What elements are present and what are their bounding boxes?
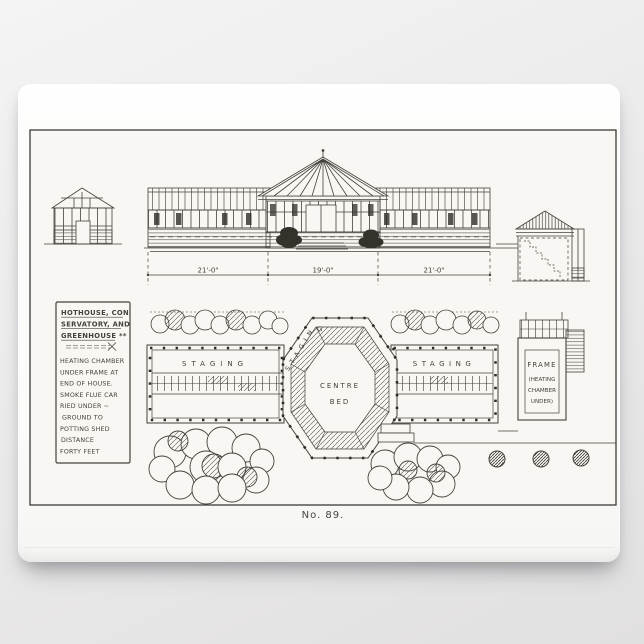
frame-box-label-line-4: UNDER)	[531, 399, 553, 405]
notes-body-line-5: RIED UNDER ~	[60, 403, 109, 410]
notes-body-line-6: GROUND TO	[62, 415, 103, 422]
notes-body-line-8: DISTANCE	[61, 437, 94, 444]
centre-bed-label-line-1: CENTRE	[320, 382, 360, 390]
dimension-label-right: 21'-0"	[423, 267, 444, 275]
frame-box-label-line-1: FRAME	[527, 361, 556, 369]
notes-body-line-9: FORTY FEET	[60, 448, 100, 455]
notes-body-line-7: POTTING SHED	[60, 426, 110, 433]
notes-body-line-2: UNDER FRAME AT	[60, 369, 118, 376]
notes-title-line-3: GREENHOUSE **	[61, 332, 127, 340]
notes-box: HOTHOUSE, CON SERVATORY, AND GREENHOUSE …	[56, 302, 130, 463]
notes-title-line-1: HOTHOUSE, CON	[61, 309, 129, 317]
frame-box-label-line-3: CHAMBER	[528, 388, 556, 394]
plan-bush-cluster-left	[149, 427, 274, 504]
frame-box-label-line-2: (HEATING	[529, 377, 556, 383]
architectural-drawing: 21'-0" 19'-0" 21'-0" HOTHOUSE, CON SERVA…	[0, 0, 644, 644]
notes-body-line-1: HEATING CHAMBER	[60, 358, 125, 365]
staging-label-right: STAGING	[413, 360, 476, 368]
notes-title-line-2: SERVATORY, AND	[61, 321, 130, 329]
staging-label-left: STAGING	[182, 360, 248, 368]
photo-background: 21'-0" 19'-0" 21'-0" HOTHOUSE, CON SERVA…	[0, 0, 644, 644]
dimension-label-center: 19'-0"	[312, 267, 333, 275]
plate-caption: No. 89.	[302, 510, 345, 521]
left-wing-elevation	[148, 188, 270, 247]
right-wing-elevation	[376, 188, 490, 247]
centre-bed-label-line-2: BED	[330, 398, 351, 406]
notes-body-line-3: END OF HOUSE.	[60, 381, 113, 388]
notes-body-line-4: SMOKE FLUE CAR	[60, 392, 118, 399]
dimension-label-left: 21'-0"	[197, 267, 218, 275]
